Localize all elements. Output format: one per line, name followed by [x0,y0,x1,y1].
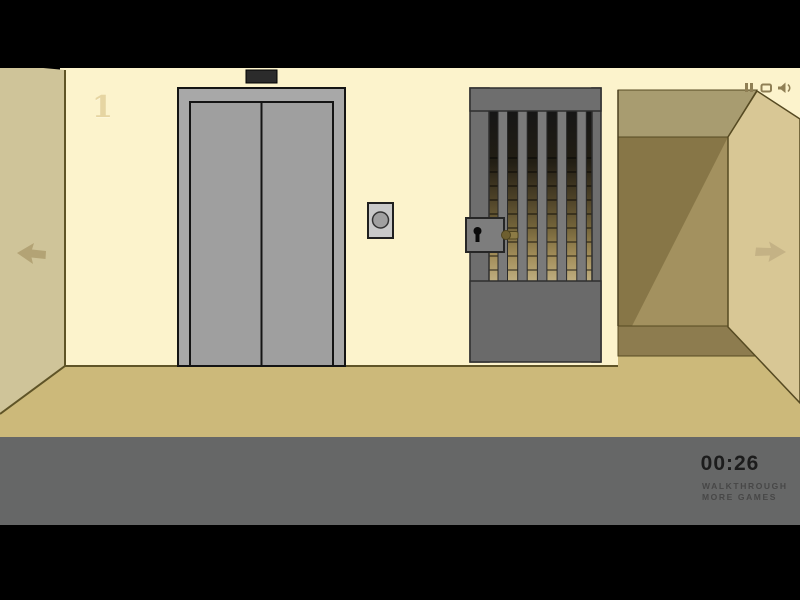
letterbox-bottom [0,525,800,600]
elevator [178,88,345,366]
hud-panel [0,437,800,525]
countdown-timer: 00:26 [698,452,762,476]
scene-graphics [0,0,800,600]
gate-key-bolt[interactable] [502,231,519,240]
keyhole-slot [476,232,480,242]
elevator-call-panel [368,203,393,238]
walkthrough-link[interactable]: WALKTHROUGH [702,481,788,491]
floor [0,356,800,437]
floor-number-label: 1 [92,90,113,125]
elevator-floor-indicator [246,70,277,83]
jail-gate[interactable] [466,88,601,362]
left-side-wall [0,64,65,414]
pause-icon [750,83,753,92]
pause-icon [745,83,748,92]
gate-bottom-panel [470,281,601,362]
game-stage: 1 00:26 WALKTHROUGH MORE GAMES [0,0,800,600]
gate-header [470,88,601,111]
elevator-call-button[interactable] [373,212,389,228]
more-games-link[interactable]: MORE GAMES [702,492,777,502]
gate-lock[interactable] [466,218,504,252]
letterbox-top [0,0,800,68]
